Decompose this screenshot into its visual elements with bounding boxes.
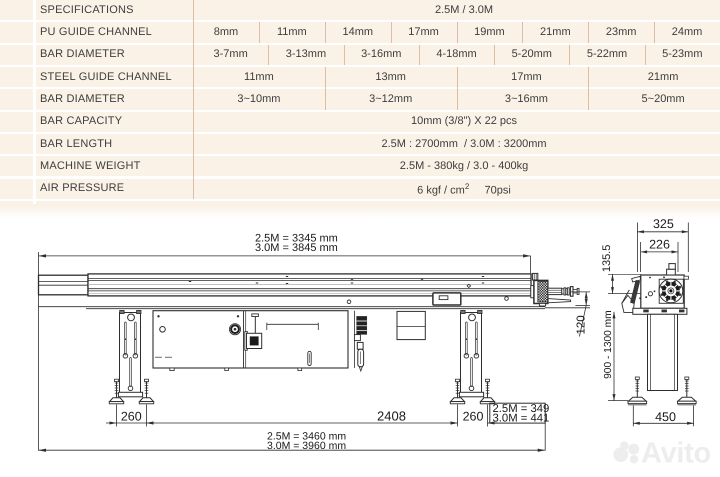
svg-text:450: 450	[655, 410, 676, 424]
svg-text:3.0M = 3960 mm: 3.0M = 3960 mm	[267, 440, 346, 452]
svg-text:226: 226	[649, 237, 670, 251]
svg-text:3.0M = 3845 mm: 3.0M = 3845 mm	[255, 242, 338, 254]
svg-text:Avito: Avito	[641, 438, 711, 470]
svg-text:120: 120	[575, 315, 587, 334]
svg-text:900 - 1300 mm: 900 - 1300 mm	[603, 310, 614, 379]
svg-text:3.0M = 441: 3.0M = 441	[493, 413, 550, 425]
svg-text:260: 260	[121, 410, 142, 424]
svg-text:135.5: 135.5	[601, 245, 613, 273]
svg-text:260: 260	[463, 410, 484, 424]
svg-text:325: 325	[653, 217, 674, 231]
svg-text:2408: 2408	[377, 409, 406, 424]
